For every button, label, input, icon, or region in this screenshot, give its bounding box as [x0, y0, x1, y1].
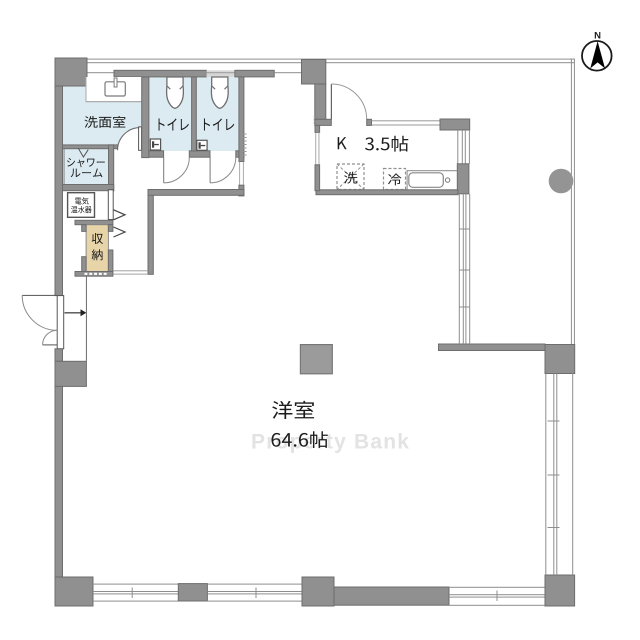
- svg-text:N: N: [594, 31, 601, 42]
